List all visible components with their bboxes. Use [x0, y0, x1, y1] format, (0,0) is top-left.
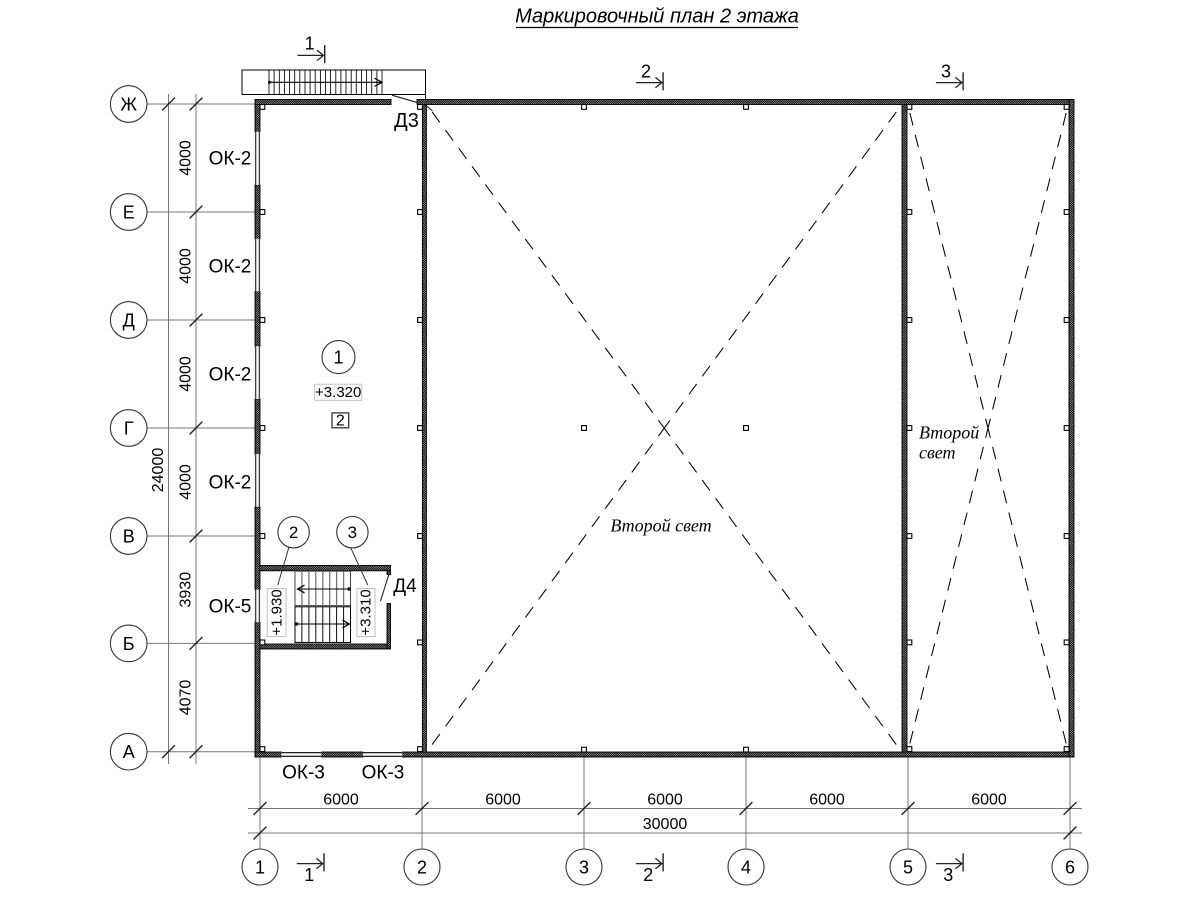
svg-text:+3.320: +3.320 [315, 384, 361, 401]
svg-text:Д: Д [123, 310, 135, 330]
svg-text:Маркировочный план 2 этажа: Маркировочный план 2 этажа [515, 6, 799, 28]
svg-text:ОК-5: ОК-5 [209, 597, 252, 618]
svg-text:1: 1 [305, 33, 315, 53]
svg-text:ОК-2: ОК-2 [209, 365, 252, 386]
svg-text:4000: 4000 [178, 464, 195, 500]
svg-text:Е: Е [123, 202, 135, 222]
svg-text:ОК-3: ОК-3 [282, 763, 325, 784]
svg-text:4000: 4000 [178, 356, 195, 392]
svg-text:2: 2 [289, 523, 298, 542]
svg-text:ОК-3: ОК-3 [362, 763, 405, 784]
svg-text:6: 6 [1065, 857, 1075, 877]
svg-text:Б: Б [123, 634, 135, 654]
svg-text:5: 5 [903, 857, 913, 877]
svg-text:+1.930: +1.930 [269, 589, 286, 635]
svg-text:свет: свет [919, 443, 956, 463]
svg-text:4: 4 [741, 857, 751, 877]
svg-text:3: 3 [943, 865, 953, 885]
svg-text:Г: Г [124, 418, 134, 438]
svg-text:3: 3 [941, 62, 951, 82]
svg-text:24000: 24000 [150, 448, 167, 493]
svg-text:1: 1 [304, 865, 314, 885]
svg-text:6000: 6000 [647, 791, 683, 808]
svg-text:4000: 4000 [178, 140, 195, 176]
svg-text:Ж: Ж [120, 94, 137, 114]
svg-text:4000: 4000 [178, 248, 195, 284]
svg-text:30000: 30000 [643, 816, 688, 833]
svg-text:2: 2 [643, 865, 653, 885]
svg-text:6000: 6000 [971, 791, 1007, 808]
svg-text:6000: 6000 [809, 791, 845, 808]
svg-text:3: 3 [348, 523, 357, 542]
svg-text:Второй: Второй [919, 423, 979, 443]
svg-text:ОК-2: ОК-2 [209, 149, 252, 170]
svg-text:2: 2 [417, 857, 427, 877]
svg-text:ОК-2: ОК-2 [209, 473, 252, 494]
svg-text:6000: 6000 [323, 791, 359, 808]
svg-text:2: 2 [641, 62, 651, 82]
svg-text:1: 1 [333, 348, 343, 368]
svg-text:6000: 6000 [485, 791, 521, 808]
svg-text:4070: 4070 [178, 680, 195, 716]
svg-text:3930: 3930 [178, 572, 195, 608]
svg-text:ОК-2: ОК-2 [209, 257, 252, 278]
svg-text:А: А [123, 742, 135, 762]
svg-text:В: В [123, 526, 135, 546]
svg-text:Д3: Д3 [394, 110, 419, 132]
svg-text:Д4: Д4 [393, 576, 417, 597]
svg-text:2: 2 [336, 412, 345, 429]
svg-text:3: 3 [579, 857, 589, 877]
svg-text:+3.310: +3.310 [358, 589, 375, 635]
svg-text:1: 1 [255, 857, 265, 877]
svg-text:Второй свет: Второй свет [610, 516, 711, 536]
